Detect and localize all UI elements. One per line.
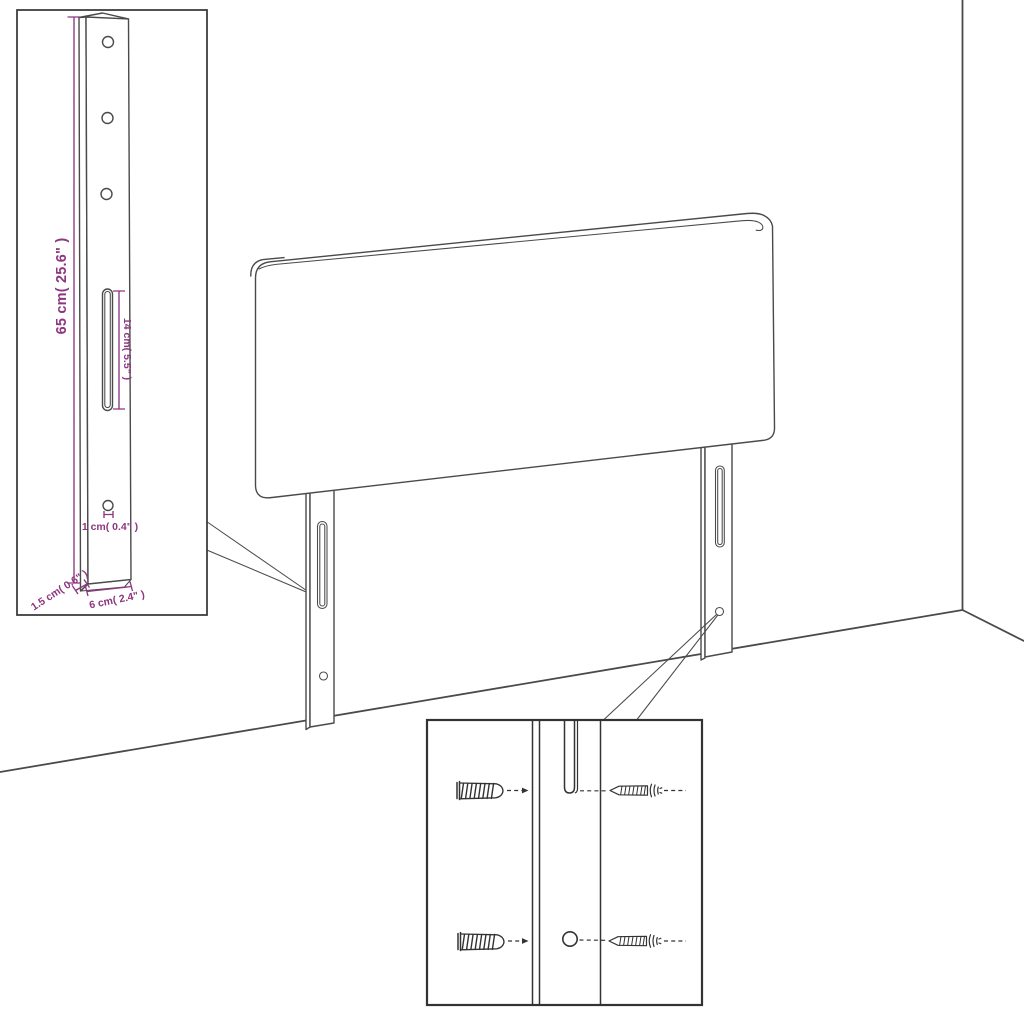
headboard-assembly-diagram: 65 cm( 25.6" ) 14 cm( 5.5" ) 1 cm( 0.4" … — [0, 0, 1024, 1024]
leg-detail-drawing — [79, 13, 131, 591]
dimension-height-label: 65 cm( 25.6" ) — [54, 238, 70, 335]
headboard-panel — [251, 213, 775, 498]
panel-front-face — [256, 213, 775, 498]
leg-front-face — [86, 17, 131, 584]
headboard-left-leg — [306, 488, 334, 730]
right-leg-front-face — [705, 442, 732, 657]
dimension-hole-label: 1 cm( 0.4" ) — [82, 521, 138, 533]
diagram-canvas: 65 cm( 25.6" ) 14 cm( 5.5" ) 1 cm( 0.4" … — [0, 0, 1024, 1024]
leg-detail-inset: 65 cm( 25.6" ) 14 cm( 5.5" ) 1 cm( 0.4" … — [17, 10, 207, 615]
callout-lines-to-leg-inset — [208, 523, 305, 592]
floor-line-right — [963, 610, 1024, 641]
callout-line — [208, 551, 305, 592]
dimension-slot-label: 14 cm( 5.5" ) — [121, 318, 133, 380]
mounting-detail-inset — [427, 720, 702, 1005]
callout-line — [208, 523, 305, 590]
headboard-right-leg — [701, 442, 732, 660]
callout-line — [637, 616, 718, 720]
